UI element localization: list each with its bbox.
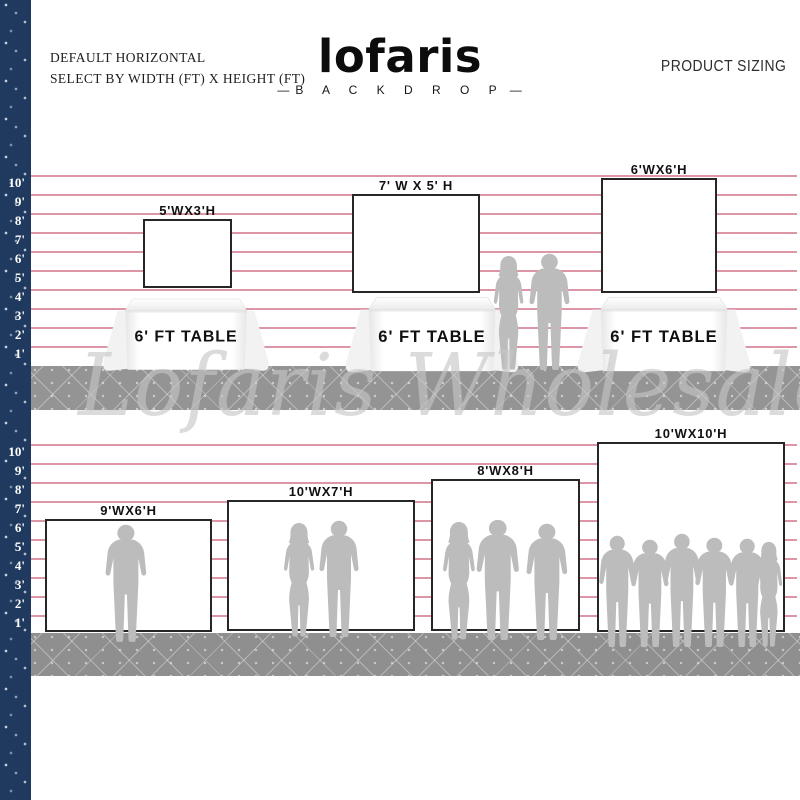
- couple-silhouette-10x7: [279, 520, 363, 638]
- banquet-table-3: 6' FT TABLE: [568, 296, 760, 376]
- ruler-mark: 9': [0, 193, 25, 211]
- backdrop-6x6: 6'WX6'H: [601, 178, 717, 293]
- ruler-mark: 8': [0, 212, 25, 230]
- backdrop-7x5: 7' W X 5' H: [352, 194, 480, 293]
- backdrop-10x10-label: 10'WX10'H: [579, 426, 800, 441]
- backdrop-6x6-label: 6'WX6'H: [583, 162, 735, 177]
- product-sizing-infographic: DEFAULT HORIZONTAL SELECT BY WIDTH (FT) …: [0, 0, 800, 800]
- ruler-mark: 2': [0, 326, 25, 344]
- backdrop-8x8-label: 8'WX8'H: [413, 463, 598, 478]
- ruler-mark: 7': [0, 231, 25, 249]
- man-silhouette-9x6: [101, 524, 151, 643]
- ruler-mark: 5': [0, 269, 25, 287]
- group-of-three-silhouette-8x8: [440, 517, 570, 641]
- ruler-mark: 8': [0, 481, 25, 499]
- ruler-mark: 6': [0, 519, 25, 537]
- table-label: 6' FT TABLE: [134, 329, 237, 346]
- ruler-mark: 3': [0, 576, 25, 594]
- page-title: PRODUCT SIZING: [661, 58, 786, 76]
- ruler-mark: 4': [0, 557, 25, 575]
- table-label: 6' FT TABLE: [378, 327, 485, 346]
- left-border-stripe: [0, 0, 31, 800]
- ruler-mark: 5': [0, 538, 25, 556]
- ruler-mark: 1': [0, 345, 25, 363]
- ruler-mark: 9': [0, 462, 25, 480]
- ruler-mark: 1': [0, 614, 25, 632]
- ruler-mark: 6': [0, 250, 25, 268]
- brand-sub-text: B A C K D R O P: [290, 83, 509, 97]
- dash-right: —: [510, 83, 523, 97]
- group-of-six-silhouette-10x10: [597, 531, 787, 648]
- backdrop-5x3: 5'WX3'H: [143, 219, 232, 288]
- ruler-mark: 4': [0, 288, 25, 306]
- ruler-mark: 10': [0, 443, 25, 461]
- ruler-mark: 2': [0, 595, 25, 613]
- backdrop-10x7-label: 10'WX7'H: [209, 484, 433, 499]
- ruler-mark: 3': [0, 307, 25, 325]
- ruler-mark: 10': [0, 174, 25, 192]
- backdrop-9x6-label: 9'WX6'H: [27, 503, 230, 518]
- backdrop-5x3-label: 5'WX3'H: [125, 203, 250, 218]
- brand-logo-subtitle: —B A C K D R O P—: [0, 83, 800, 97]
- banquet-table-1: 6' FT TABLE: [97, 296, 275, 376]
- backdrop-7x5-label: 7' W X 5' H: [334, 178, 498, 193]
- table-label: 6' FT TABLE: [610, 327, 717, 346]
- couple-silhouette-row1: [489, 252, 577, 371]
- dash-left: —: [277, 83, 290, 97]
- ruler-mark: 7': [0, 500, 25, 518]
